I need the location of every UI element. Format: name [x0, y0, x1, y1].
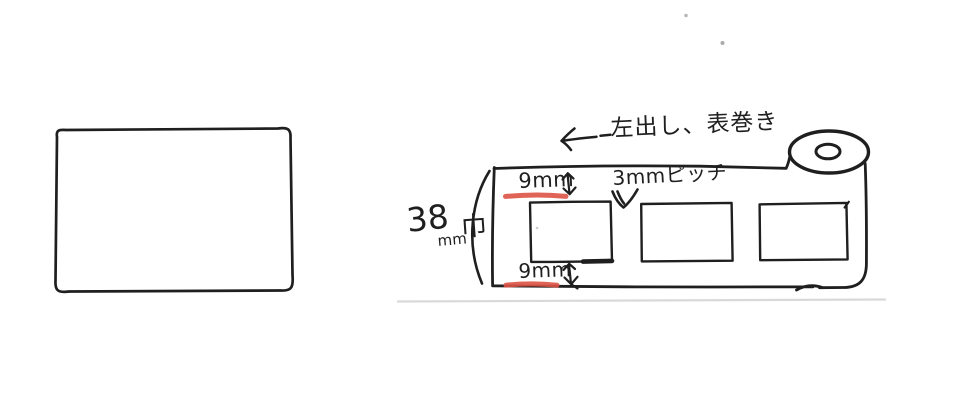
- scan-speck-2: [721, 41, 725, 45]
- label-cell-1: [530, 202, 612, 262]
- blank-label-outline: [55, 128, 292, 292]
- sketch-canvas: [0, 0, 971, 419]
- roll-core-hole: [816, 144, 840, 159]
- red-underline-top: [506, 195, 567, 196]
- top-margin-label: 9mm: [518, 169, 574, 192]
- red-underline-bottom: [506, 284, 557, 285]
- width-suffix: 巾: [460, 213, 488, 241]
- scan-speck-1: [684, 14, 688, 18]
- left-arrow-icon: [562, 129, 611, 151]
- scanned-sketch-page: 左出し、表巻き 9mm 3mmピッチ 9mm 38 mm 巾: [0, 0, 971, 419]
- label-cell-1-ink-blob: [583, 261, 612, 262]
- label-cell-3: [760, 203, 848, 260]
- pitch-label: 3mmピッチ: [612, 162, 728, 188]
- bottom-margin-label: 9mm: [518, 259, 572, 281]
- scan-speck-3: [536, 227, 539, 230]
- scan-artifact-line: [397, 300, 886, 302]
- left-sketch: [55, 128, 292, 292]
- down-arrow-icon: [613, 190, 638, 208]
- label-cell-2: [641, 203, 732, 262]
